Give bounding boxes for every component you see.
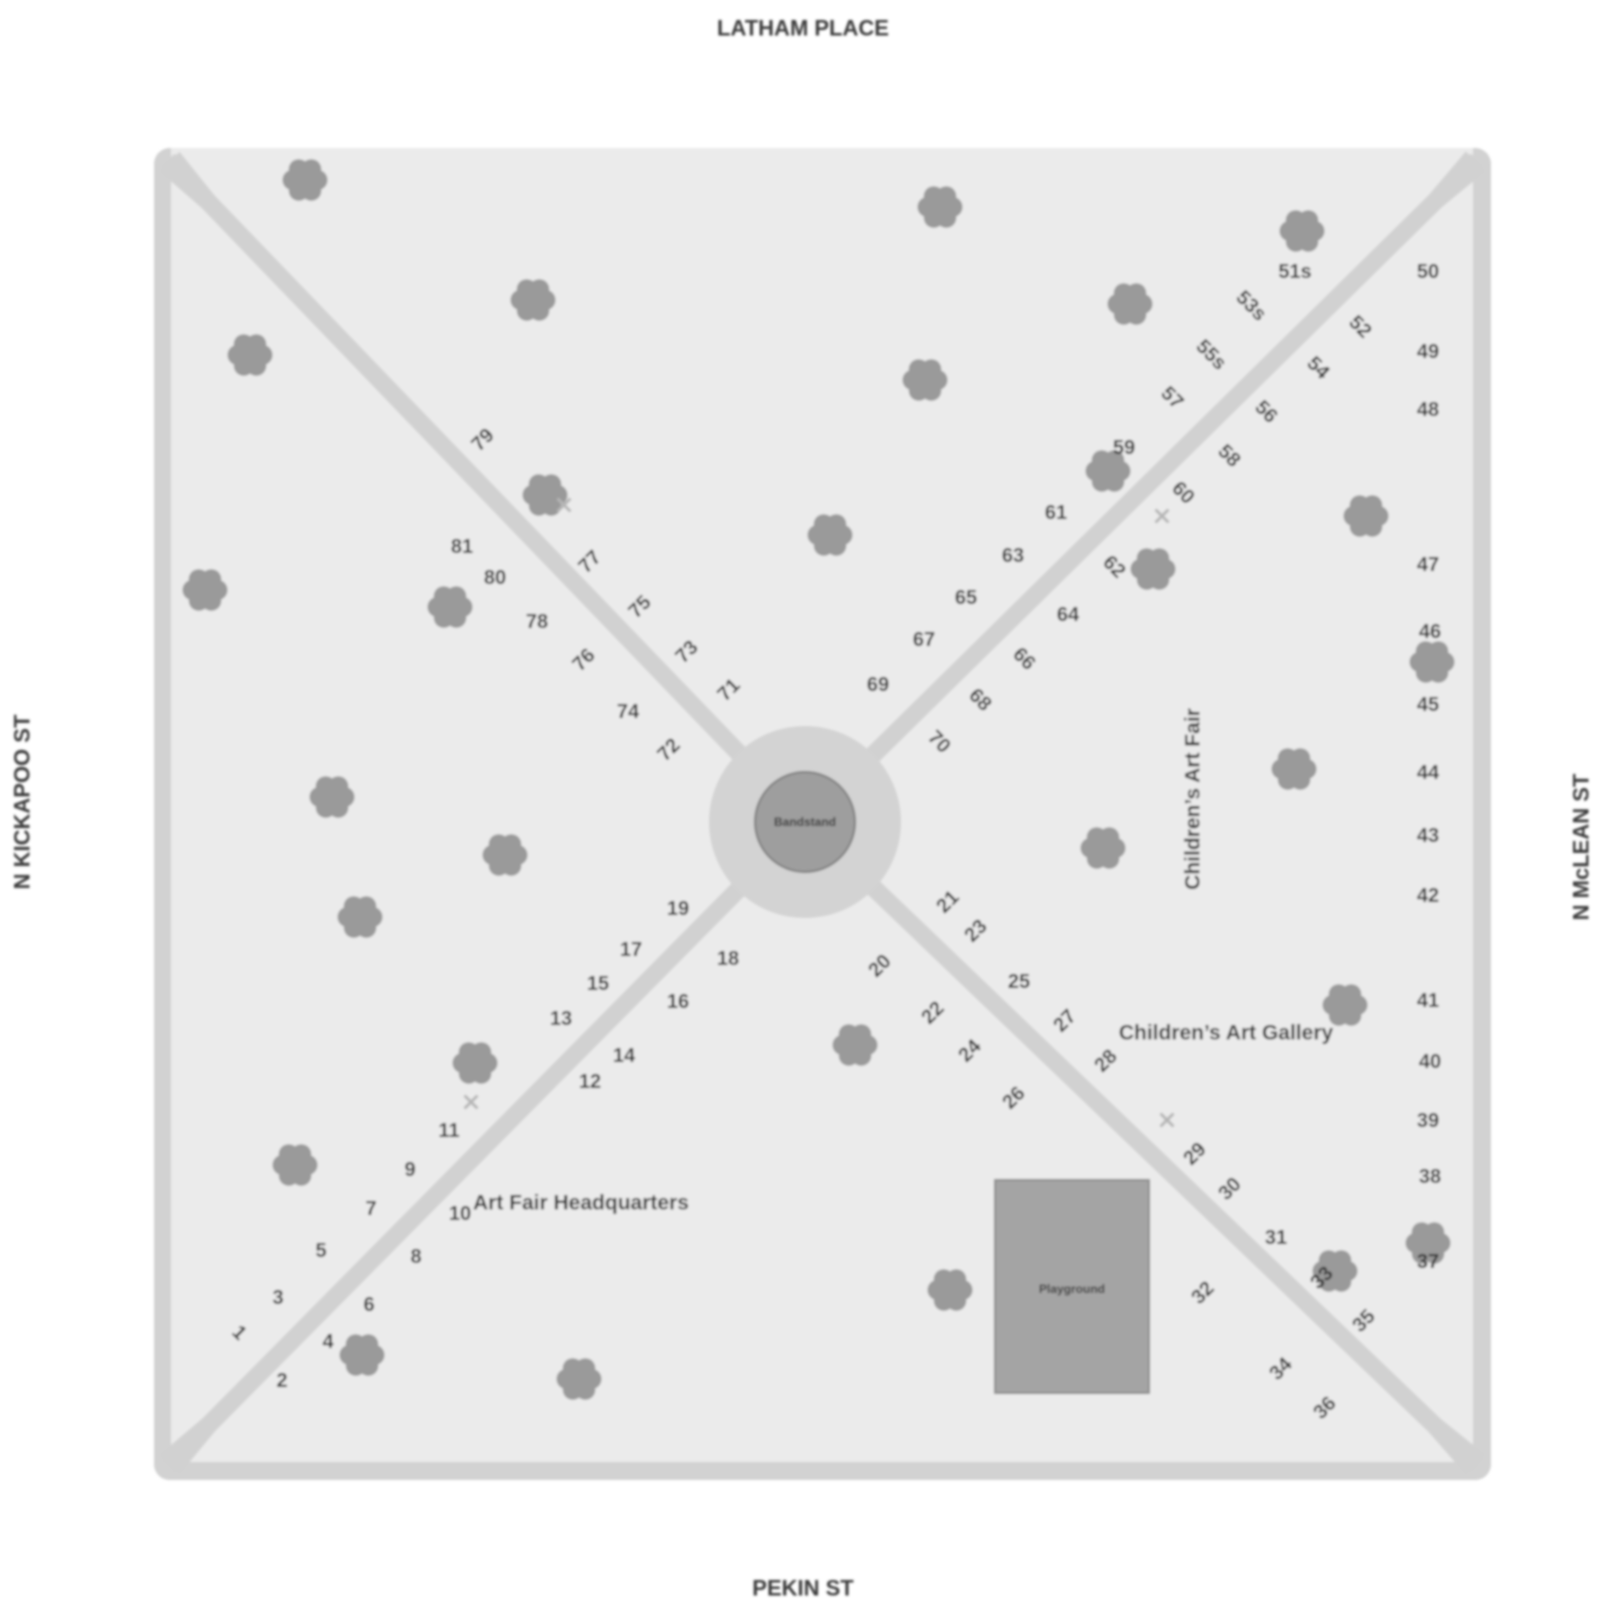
svg-text:63: 63 (1002, 545, 1024, 567)
svg-text:31: 31 (1265, 1227, 1287, 1249)
svg-text:5: 5 (315, 1240, 326, 1262)
svg-text:10: 10 (449, 1203, 471, 1225)
svg-text:6: 6 (363, 1294, 374, 1316)
svg-text:59: 59 (1113, 437, 1135, 459)
svg-text:N KICKAPOO ST: N KICKAPOO ST (10, 714, 35, 889)
svg-text:51s: 51s (1278, 261, 1311, 283)
svg-text:41: 41 (1417, 990, 1439, 1012)
svg-text:40: 40 (1419, 1051, 1441, 1073)
svg-text:37: 37 (1417, 1251, 1439, 1273)
svg-text:39: 39 (1417, 1110, 1439, 1132)
svg-text:46: 46 (1419, 621, 1441, 643)
svg-text:44: 44 (1417, 762, 1440, 784)
svg-text:65: 65 (955, 587, 977, 609)
svg-text:19: 19 (667, 898, 689, 920)
svg-text:38: 38 (1419, 1166, 1441, 1188)
svg-text:74: 74 (617, 701, 640, 723)
svg-text:42: 42 (1417, 885, 1439, 907)
svg-text:9: 9 (404, 1159, 415, 1181)
svg-text:N McLEAN ST: N McLEAN ST (1569, 773, 1594, 920)
svg-text:Art Fair Headquarters: Art Fair Headquarters (473, 1192, 689, 1215)
svg-text:49: 49 (1417, 341, 1439, 363)
svg-text:16: 16 (667, 991, 689, 1013)
svg-text:17: 17 (620, 939, 642, 961)
svg-text:81: 81 (451, 536, 473, 558)
svg-text:45: 45 (1417, 694, 1439, 716)
svg-text:Children’s Art Gallery: Children’s Art Gallery (1119, 1022, 1334, 1045)
svg-text:8: 8 (410, 1246, 421, 1268)
svg-text:14: 14 (613, 1045, 636, 1067)
svg-text:PEKIN ST: PEKIN ST (752, 1576, 854, 1601)
svg-text:78: 78 (526, 611, 548, 633)
svg-text:67: 67 (913, 629, 935, 651)
svg-text:64: 64 (1057, 604, 1080, 626)
svg-text:43: 43 (1417, 825, 1439, 847)
svg-text:2: 2 (276, 1370, 287, 1392)
svg-text:13: 13 (550, 1008, 572, 1030)
svg-text:7: 7 (365, 1198, 376, 1220)
svg-text:47: 47 (1417, 554, 1439, 576)
svg-text:Bandstand: Bandstand (774, 815, 836, 829)
svg-text:18: 18 (717, 948, 739, 970)
svg-text:61: 61 (1045, 502, 1067, 524)
svg-text:25: 25 (1008, 971, 1030, 993)
svg-text:Children’s Art Fair: Children’s Art Fair (1182, 708, 1205, 890)
svg-text:80: 80 (484, 567, 506, 589)
svg-text:LATHAM PLACE: LATHAM PLACE (717, 16, 889, 41)
svg-text:11: 11 (438, 1120, 459, 1142)
svg-text:12: 12 (579, 1071, 601, 1093)
svg-text:48: 48 (1417, 399, 1439, 421)
svg-text:15: 15 (587, 973, 609, 995)
svg-text:3: 3 (272, 1287, 283, 1309)
svg-text:69: 69 (867, 674, 889, 696)
svg-text:Playground: Playground (1039, 1282, 1105, 1296)
svg-text:4: 4 (322, 1331, 334, 1353)
svg-text:50: 50 (1417, 261, 1439, 283)
